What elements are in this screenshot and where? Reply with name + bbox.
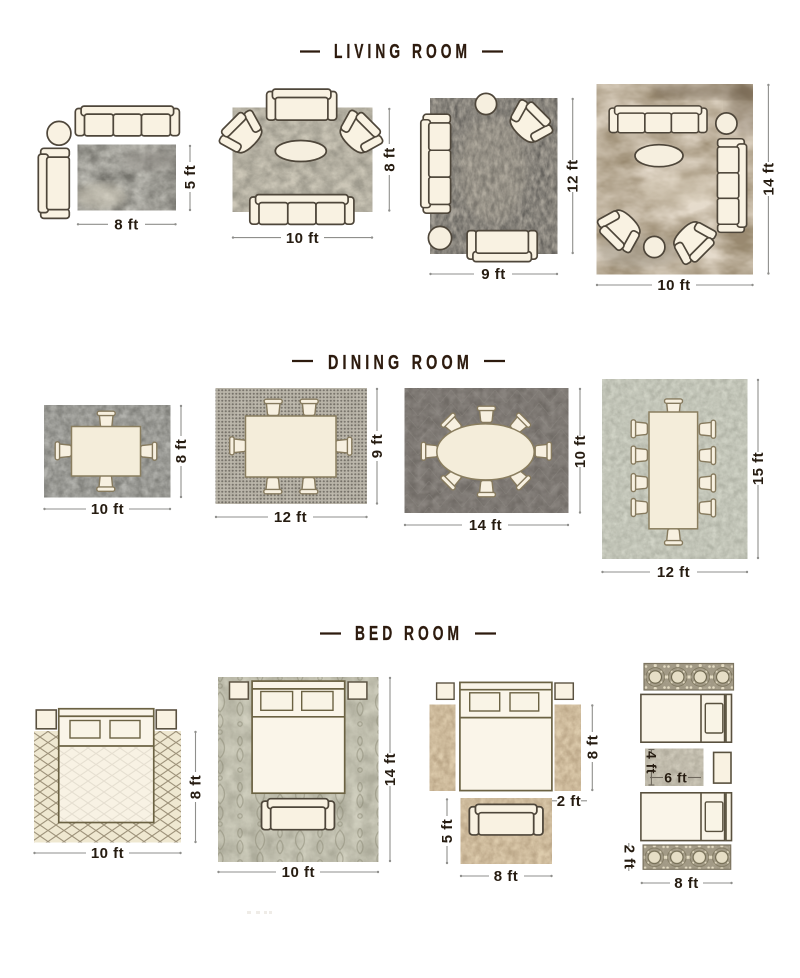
svg-text:10 ft: 10 ft [282, 864, 315, 881]
svg-text:12 ft: 12 ft [657, 564, 690, 581]
svg-text:5 ft: 5 ft [182, 165, 199, 190]
svg-text:10 ft: 10 ft [91, 501, 124, 518]
svg-text:9 ft: 9 ft [481, 266, 506, 283]
svg-text:8 ft: 8 ft [114, 217, 139, 234]
svg-text:8 ft: 8 ft [381, 147, 398, 172]
svg-text:9 ft: 9 ft [369, 434, 386, 459]
svg-text:12 ft: 12 ft [274, 509, 307, 526]
svg-text:14 ft: 14 ft [382, 753, 399, 786]
svg-text:12 ft: 12 ft [565, 159, 582, 192]
svg-text:DINING ROOM: DINING ROOM [328, 351, 473, 374]
svg-text:2 ft: 2 ft [620, 845, 637, 870]
svg-text:8 ft: 8 ft [188, 775, 205, 800]
svg-text:8 ft: 8 ft [674, 875, 699, 892]
svg-text:5 ft: 5 ft [439, 819, 456, 844]
svg-text:10 ft: 10 ft [286, 230, 319, 247]
svg-text:10 ft: 10 ft [657, 277, 690, 294]
svg-text:2 ft: 2 ft [557, 793, 582, 810]
svg-text:8 ft: 8 ft [173, 439, 190, 464]
svg-text:6 ft: 6 ft [664, 770, 687, 786]
svg-text:BED ROOM: BED ROOM [355, 622, 463, 645]
svg-text:LIVING ROOM: LIVING ROOM [334, 40, 471, 63]
svg-text:10 ft: 10 ft [91, 845, 124, 862]
svg-text:15 ft: 15 ft [750, 452, 767, 485]
svg-text:8 ft: 8 ft [584, 735, 601, 760]
svg-text:14 ft: 14 ft [760, 162, 777, 195]
svg-text:14 ft: 14 ft [469, 517, 502, 534]
svg-text:4 ft: 4 ft [644, 751, 660, 774]
svg-text:8 ft: 8 ft [494, 868, 519, 885]
svg-text:10 ft: 10 ft [572, 435, 589, 468]
